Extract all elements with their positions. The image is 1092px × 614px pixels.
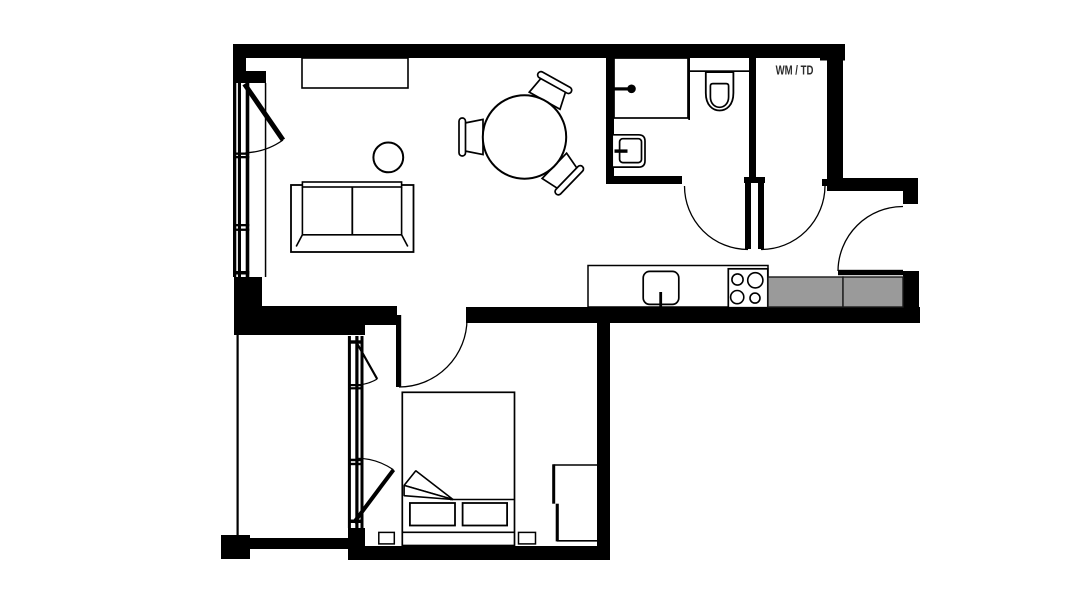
svg-text:WM / TD: WM / TD — [776, 64, 814, 78]
